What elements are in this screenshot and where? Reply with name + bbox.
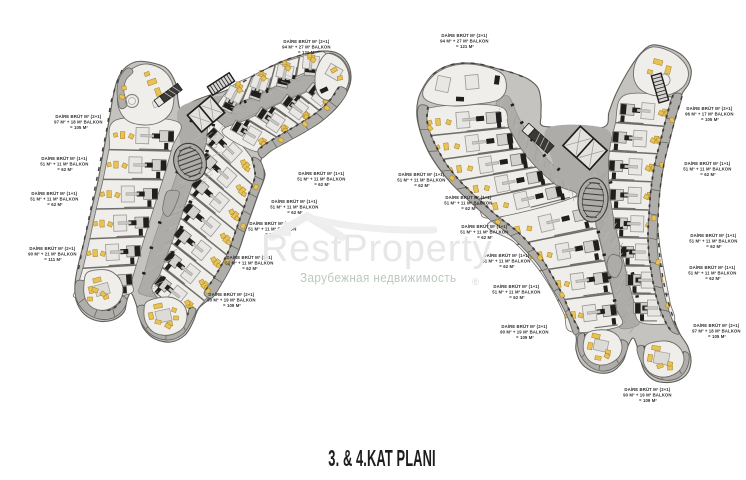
svg-text:DAİRE BRÜT M² (1+1) 51 M² + 11: DAİRE BRÜT M² (1+1) 51 M² + 11 M² BALKON…	[492, 284, 542, 300]
svg-text:DAİRE BRÜT M² (1+1) 51 M² + 11: DAİRE BRÜT M² (1+1) 51 M² + 11 M² BALKON…	[30, 191, 80, 207]
svg-text:DAİRE BRÜT M² (2+1) 97 M² + 18: DAİRE BRÜT M² (2+1) 97 M² + 18 M² BALKON…	[54, 114, 104, 130]
svg-text:®: ®	[472, 277, 479, 287]
svg-text:DAİRE BRÜT M² (1+1) 51 M² + 11: DAİRE BRÜT M² (1+1) 51 M² + 11 M² BALKON…	[397, 172, 447, 188]
svg-text:DAİRE BRÜT M² (1+1) 51 M² + 11: DAİRE BRÜT M² (1+1) 51 M² + 11 M² BALKON…	[688, 265, 738, 281]
svg-text:DAİRE BRÜT M² (1+1) 51 M² + 11: DAİRE BRÜT M² (1+1) 51 M² + 11 M² BALKON…	[689, 233, 739, 249]
svg-text:DAİRE BRÜT M² (2+1) 97 M² + 18: DAİRE BRÜT M² (2+1) 97 M² + 18 M² BALKON…	[692, 323, 742, 339]
svg-text:RestProperty: RestProperty	[261, 228, 492, 270]
svg-text:DAİRE BRÜT M² (2+1) 90 M² + 19: DAİRE BRÜT M² (2+1) 90 M² + 19 M² BALKON…	[207, 292, 257, 308]
svg-text:DAİRE BRÜT M² (2+1) 94 M² + 27: DAİRE BRÜT M² (2+1) 94 M² + 27 M² BALKON…	[440, 33, 490, 49]
svg-text:DAİRE BRÜT M² (1+1) 51 M² + 11: DAİRE BRÜT M² (1+1) 51 M² + 11 M² BALKON…	[683, 161, 733, 177]
svg-text:DAİRE BRÜT M² (1+1) 51 M² + 11: DAİRE BRÜT M² (1+1) 51 M² + 11 M² BALKON…	[40, 156, 90, 172]
svg-text:Зарубежная недвижимость: Зарубежная недвижимость	[300, 271, 456, 285]
svg-text:DAİRE BRÜT M² (2+1) 90 M² + 19: DAİRE BRÜT M² (2+1) 90 M² + 19 M² BALKON…	[500, 324, 550, 340]
svg-text:DAİRE BRÜT M² (1+1) 51 M² + 11: DAİRE BRÜT M² (1+1) 51 M² + 11 M² BALKON…	[297, 171, 347, 187]
svg-text:3. & 4.KAT PLANI: 3. & 4.KAT PLANI	[328, 445, 435, 471]
svg-text:DAİRE BRÜT M² (2+1) 90 M² + 19: DAİRE BRÜT M² (2+1) 90 M² + 19 M² BALKON…	[623, 387, 673, 403]
svg-text:DAİRE BRÜT M² (2+1) 90 M² + 21: DAİRE BRÜT M² (2+1) 90 M² + 21 M² BALKON…	[28, 246, 78, 262]
svg-text:DAİRE BRÜT M² (1+1) 51 M² + 11: DAİRE BRÜT M² (1+1) 51 M² + 11 M² BALKON…	[270, 199, 320, 215]
svg-text:DAİRE BRÜT M² (2+1) 96 M² + 17: DAİRE BRÜT M² (2+1) 96 M² + 17 M² BALKON…	[685, 106, 735, 122]
